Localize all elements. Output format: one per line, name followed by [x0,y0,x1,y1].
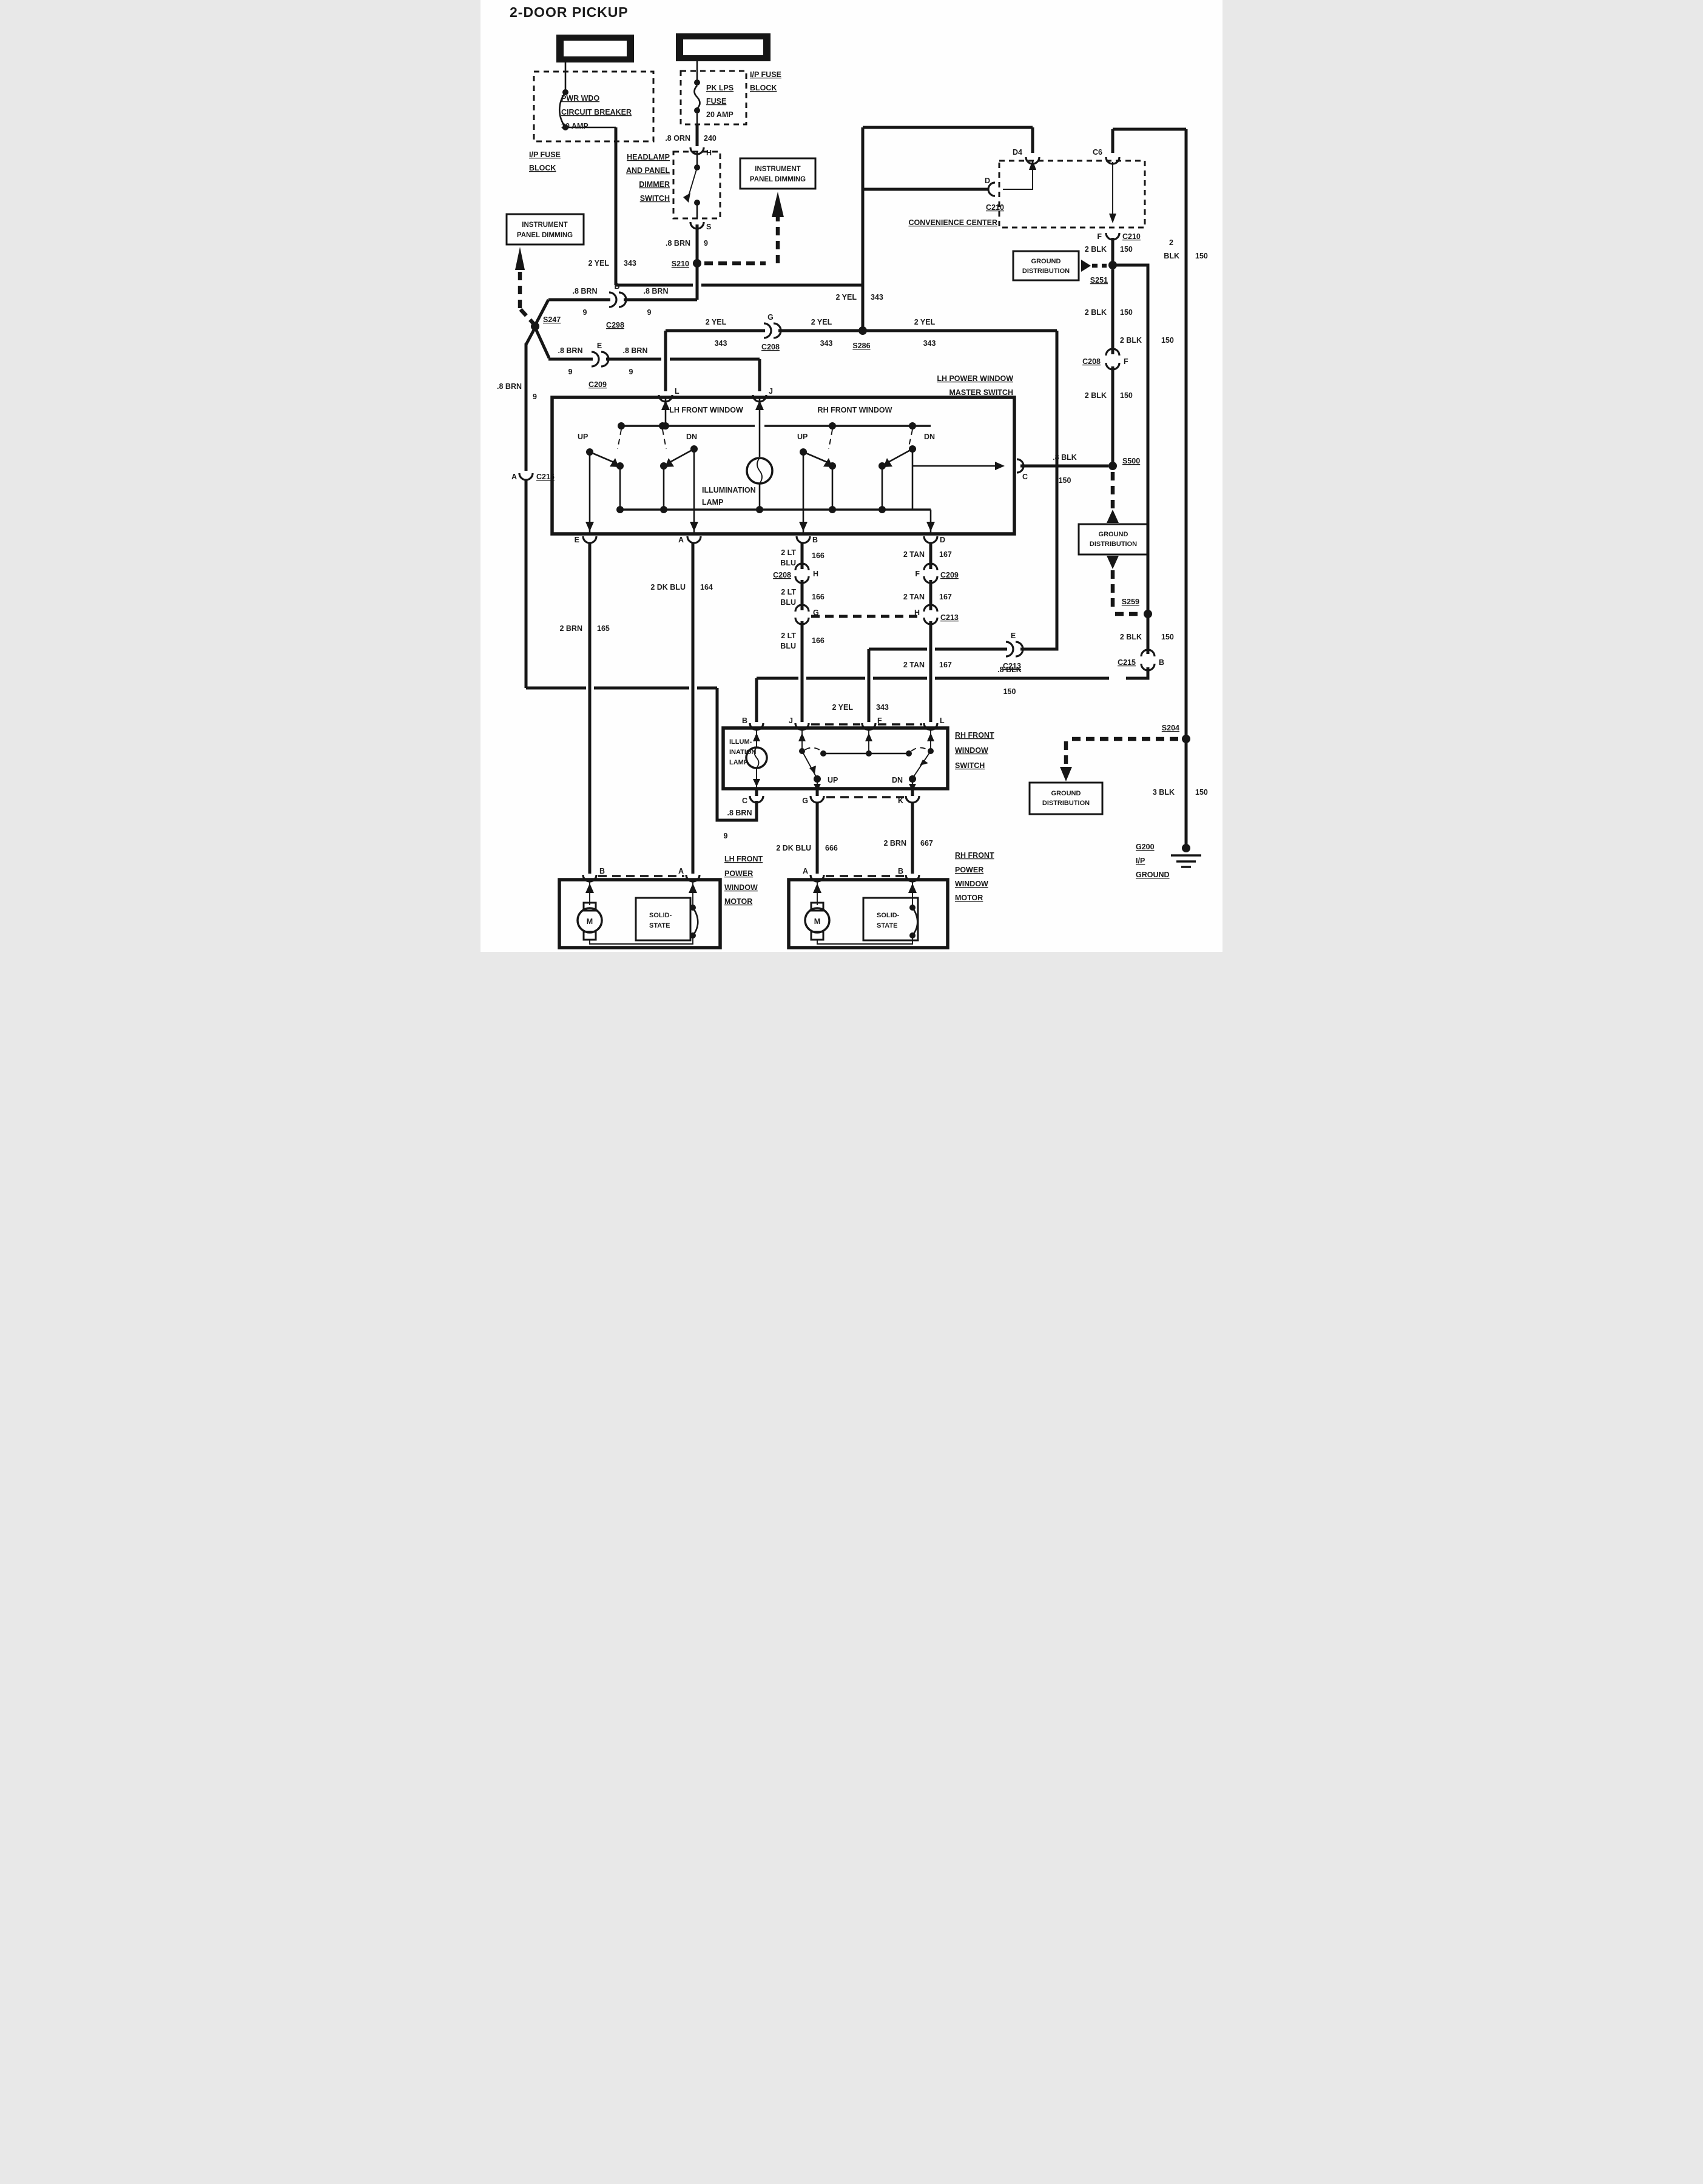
pin-a: A [678,536,684,544]
splice-s286 [858,326,867,335]
fuse-name-1: PK LPS [706,84,733,92]
illum-label-2: INATION [729,749,756,756]
dimmer-label-4: SWITCH [640,194,670,203]
wire-gauge: 2 DK BLU [776,844,811,852]
wire-gauge: 2 YEL [706,318,727,326]
wire-gauge: .8 BRN [558,346,583,355]
rh-window-switch: B J F L RH FRONT WINDOW SWITCH ILLUM- IN… [723,716,994,791]
pin-b-c215: B [1159,658,1164,667]
lh-motor-label-2: POWER [724,869,753,878]
wire-circuit: 150 [1120,391,1133,400]
wire-gauge: BLK [1164,252,1179,260]
pin-j: J [769,387,773,396]
connector-c213-label: C213 [1003,662,1021,670]
wire-circuit: 150 [1120,245,1133,254]
dn-label: DN [686,433,697,441]
master-switch-label-1: LH POWER WINDOW [937,374,1013,383]
fuse-name-2: FUSE [706,97,726,106]
wire-circuit: 167 [939,661,952,669]
pin-a-rhm: A [803,867,808,875]
pin-d: D [985,177,990,185]
wire-gauge: BLU [780,559,796,567]
solid-state-2: STATE [649,922,670,929]
convenience-center-label: CONVENIENCE CENTER [908,218,997,227]
pk-lps-fuse: PK LPS FUSE 20 AMP I/P FUSE BLOCK [681,61,781,124]
ground-distribution-ref-3: GROUND DISTRIBUTION [1030,739,1178,814]
wire-gauge: 2 DK BLU [650,583,686,591]
connector-c208-label: C208 [1082,357,1101,366]
wire-circuit: 343 [715,339,727,348]
wiring-diagram-page: 2-DOOR PICKUP HOT IN RUN HOT AT ALL TIME… [481,0,1222,952]
wire-circuit: 150 [1195,788,1208,797]
wire-gauge: 2 BLK [1120,633,1142,641]
dn-label: DN [892,776,903,784]
wire-gauge: .8 BRN [644,287,669,295]
pin-f-c209: F [915,570,920,578]
wire-gauge: .8 BRN [727,809,752,817]
brn-dimming-bus: B .8 BRN 9 .8 BRN 9 C298 [548,282,697,329]
wire-gauge: 3 BLK [1153,788,1175,797]
pin-h: H [706,149,712,157]
connector-c210-label: C210 [986,203,1004,212]
g200-label-1: G200 [1136,843,1155,851]
dimmer-label-3: DIMMER [639,180,670,189]
wire-gauge: 2 BLK [1085,308,1107,317]
wire-circuit: 343 [820,339,833,348]
rh-front-window-label: RH FRONT WINDOW [818,406,892,414]
pin-e-c209: E [597,342,602,350]
pin-b-lhm: B [599,867,605,875]
rh-motor-label-1: RH FRONT [955,851,994,860]
pin-c-rhsw: C [742,797,747,805]
wire-gauge: .8 BRN [497,382,522,391]
pin-h-c213: H [914,608,920,617]
motor-m: M [587,917,593,926]
wire-circuit: 166 [812,636,825,645]
wire-circuit: 9 [533,393,537,401]
gnd-dist-2: DISTRIBUTION [1042,800,1090,807]
wire-circuit: 343 [624,259,636,268]
master-switch-label-2: MASTER SWITCH [949,388,1013,397]
splice-s247-label: S247 [543,315,561,324]
breaker-name-2: CIRCUIT BREAKER [561,108,632,116]
g200-label-3: GROUND [1136,871,1170,879]
ip-fuse-block2-label-1: I/P FUSE [750,70,781,79]
wire-circuit: 167 [939,593,952,601]
ground-distribution-ref-2: GROUND DISTRIBUTION [1079,472,1148,614]
pin-e-c213: E [1011,632,1016,640]
wire-gauge: .8 BRN [623,346,648,355]
gnd-dist-1: GROUND [1031,258,1061,265]
connector-c215-a-arc [519,473,533,480]
gnd-dist-2: DISTRIBUTION [1090,541,1137,548]
page-title: 2-DOOR PICKUP [510,4,629,20]
wire-gauge: 2 BRN [883,839,906,848]
splice-s500-label: S500 [1122,457,1140,465]
lh-front-window-label: LH FRONT WINDOW [669,406,743,414]
wire-circuit: 9 [647,308,652,317]
splice-s259-label: S259 [1122,598,1139,606]
connector-c209-label: C209 [588,380,607,389]
illumination-label-2: LAMP [702,498,723,507]
wire-gauge: 2 YEL [832,703,853,712]
connector-c209-label2: C209 [940,571,959,579]
wire-gauge: 2 YEL [811,318,832,326]
wire-circuit: 166 [812,551,825,560]
wire-circuit: 166 [812,593,825,601]
wire-gauge-brn: .8 BRN [666,239,690,248]
wire-circuit: 150 [1120,308,1133,317]
ip-fuse-block-label-1: I/P FUSE [529,150,561,159]
wire-circuit: 666 [825,844,838,852]
wire-gauge-orn: .8 ORN [665,134,690,143]
wire-circuit: 150 [1161,633,1174,641]
ipd-left-1: INSTRUMENT [522,221,567,229]
wire-gauge: 2 LT [781,632,796,640]
illum-label-1: ILLUM- [729,738,752,746]
splice-s286-label: S286 [852,342,870,350]
wire-gauge: BLU [780,642,796,650]
connector-c298-label: C298 [606,321,624,329]
gnd-dist-1: GROUND [1051,790,1081,797]
pin-l: L [675,387,680,396]
wire-gauge: 2 BLK [1085,391,1107,400]
connector-c215-label2: C215 [1118,658,1136,667]
pin-f-c208: F [1124,357,1128,366]
wire-circuit-240: 240 [704,134,717,143]
wire-gauge: BLU [780,598,796,607]
solid-state-1: SOLID- [649,912,672,919]
hot-in-run-label: HOT IN RUN [572,44,618,53]
pin-h-c208: H [813,570,818,578]
wire-circuit: 9 [568,368,573,376]
wire-circuit: 343 [876,703,889,712]
wire-gauge: 2 TAN [903,550,925,559]
wire-circuit: 164 [700,583,713,591]
wire-gauge: 2 [1169,238,1173,247]
ipd-left-2: PANEL DIMMING [517,232,573,239]
ip-fuse-block-label-2: BLOCK [529,164,556,172]
g200-label-2: I/P [1136,857,1145,865]
breaker-rating: 30 AMP [561,122,588,130]
gnd-dist-2: DISTRIBUTION [1022,268,1070,275]
pin-a-c215: A [511,473,517,481]
up-label: UP [797,433,808,441]
brn-dimming-bus-2: E .8 BRN 9 .8 BRN 9 C209 [548,342,760,389]
wire-circuit: 150 [1161,336,1174,345]
wire-gauge: 2 LT [781,588,796,596]
pin-g-rhsw: G [802,797,808,805]
pin-l-rhsw: L [940,716,945,725]
wire-circuit: 167 [939,550,952,559]
pin-g-c208: G [767,313,774,322]
pin-a-lhm: A [678,867,684,875]
wire-circuit: 9 [724,832,728,840]
rh-switch-label-1: RH FRONT [955,731,994,740]
connector-c213-label2: C213 [940,613,959,622]
hot-at-all-times-label: HOT AT ALL TIMES [687,43,760,52]
connector-c208-label3: C208 [773,571,791,579]
wire-gauge: 2 TAN [903,661,925,669]
splice-s204-label: S204 [1162,724,1179,732]
wire-circuit: 667 [920,839,933,848]
wire-gauge: .8 BRN [573,287,598,295]
pin-c6: C6 [1093,148,1102,157]
splice-s204 [1182,735,1190,743]
illumination-label-1: ILLUMINATION [702,486,756,494]
wire-circuit: 150 [1003,687,1016,696]
connector-c210-label2: C210 [1122,232,1141,241]
wire-gauge: 2 YEL [588,259,609,268]
pin-b: B [812,536,818,544]
master-switch: LH POWER WINDOW MASTER SWITCH L J LH FRO… [552,374,1014,534]
wire-circuit: 165 [597,624,610,633]
wire-gauge: 2 BRN [559,624,582,633]
ipd-right-2: PANEL DIMMING [750,176,806,183]
pin-s: S [706,223,711,231]
motor-m: M [814,917,820,926]
pin-b-rhm: B [898,867,903,875]
wire-gauge: 2 YEL [835,293,857,302]
rh-window-motor: A B M SOLID- STATE RH FRONT POWER WINDOW… [789,851,994,948]
wire-gauge: 2 BLK [1085,245,1107,254]
solid-state-2: STATE [877,922,897,929]
wire-gauge: 2 LT [781,548,796,557]
wire-circuit: 343 [871,293,883,302]
pin-f-c210: F [1097,232,1102,241]
dimmer-label-1: HEADLAMP [627,153,670,161]
fuse-rating: 20 AMP [706,110,733,119]
wire-circuit-9: 9 [704,239,708,248]
illum-label-3: LAMP [729,759,748,766]
splice-s210-label: S210 [672,260,689,268]
ip-fuse-block2-label-2: BLOCK [750,84,777,92]
rh-motor-label-2: POWER [955,866,983,874]
wire-circuit: 150 [1195,252,1208,260]
rh-switch-label-2: WINDOW [955,746,988,755]
rh-motor-label-4: MOTOR [955,894,983,902]
wire-gauge: 2 TAN [903,593,925,601]
lh-motor-label-4: MOTOR [724,897,752,906]
dimmer-label-2: AND PANEL [626,166,670,175]
rh-motor-label-3: WINDOW [955,880,988,888]
up-label: UP [828,776,838,784]
headlamp-dimmer-switch: HEADLAMP AND PANEL DIMMER SWITCH [626,152,720,218]
pin-d4: D4 [1013,148,1022,157]
pin-c: C [1022,473,1028,481]
breaker-name-1: PWR WDO [561,94,599,103]
wire-circuit: 150 [1059,476,1071,485]
pin-b-rhsw: B [742,716,747,725]
dn-label: DN [924,433,935,441]
wire-circuit: 9 [583,308,587,317]
pin-d: D [940,536,945,544]
up-label: UP [578,433,588,441]
wire-circuit: 343 [923,339,936,348]
lh-motor-label-3: WINDOW [724,883,758,892]
wire-gauge: 2 YEL [914,318,936,326]
solid-state-1: SOLID- [877,912,900,919]
rh-switch-label-3: SWITCH [955,761,985,770]
wire-gauge: 2 BLK [1120,336,1142,345]
pin-j-rhsw: J [789,716,793,725]
connector-c208-label2: C208 [761,343,780,351]
hot-at-all-times-box: HOT AT ALL TIMES [676,33,771,61]
wiring-diagram: 2-DOOR PICKUP HOT IN RUN HOT AT ALL TIME… [481,0,1222,952]
ipd-right-1: INSTRUMENT [755,166,800,173]
pin-e: E [575,536,579,544]
lh-motor-label-1: LH FRONT [724,855,763,863]
splice-s251-label: S251 [1090,276,1108,285]
hot-in-run-box: HOT IN RUN [556,35,634,62]
splice-s500 [1108,462,1117,470]
gnd-dist-1: GROUND [1099,531,1128,538]
g200-ground: G200 I/P GROUND [1136,843,1201,879]
wire-circuit: 9 [629,368,633,376]
